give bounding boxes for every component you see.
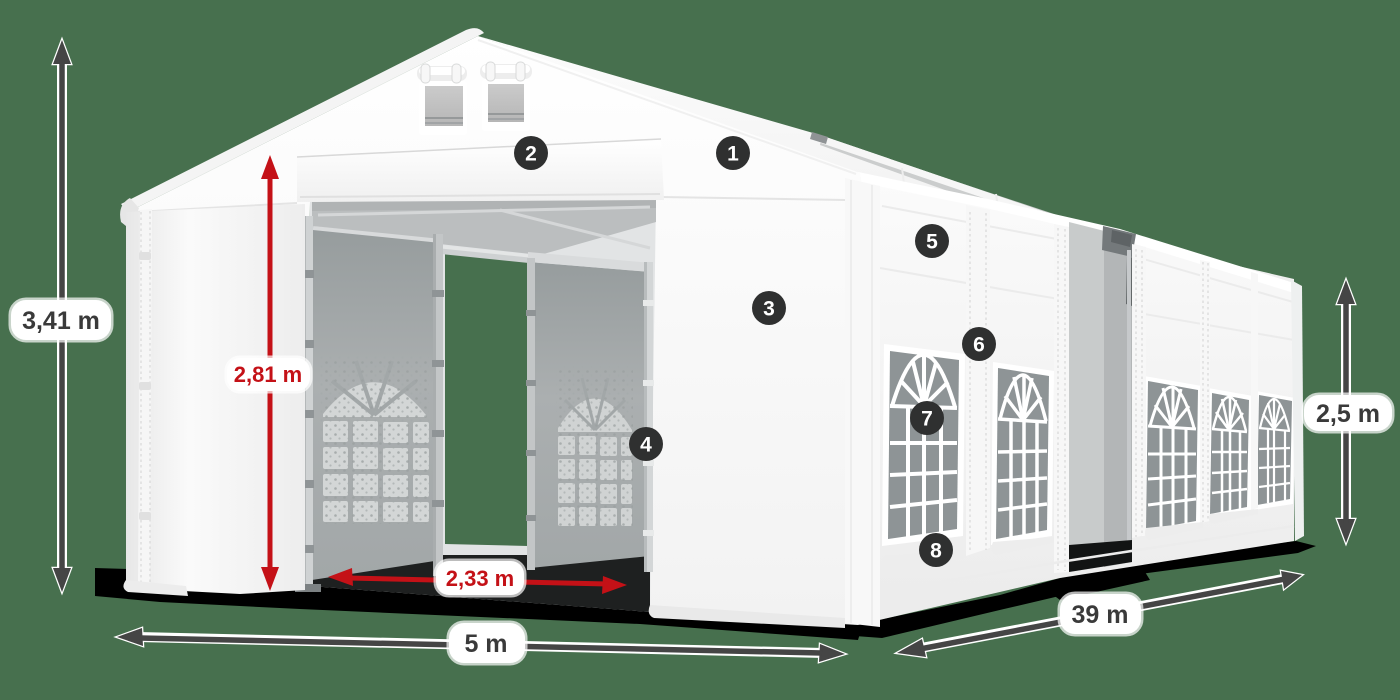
svg-text:5: 5 xyxy=(926,231,938,254)
svg-text:2: 2 xyxy=(525,143,537,166)
svg-text:8: 8 xyxy=(930,540,942,563)
svg-text:2,5 m: 2,5 m xyxy=(1316,400,1380,428)
svg-text:2,33 m: 2,33 m xyxy=(446,566,515,591)
svg-text:4: 4 xyxy=(640,434,652,457)
svg-text:3,41 m: 3,41 m xyxy=(22,307,100,335)
svg-text:7: 7 xyxy=(921,408,933,431)
svg-text:3: 3 xyxy=(763,298,775,321)
svg-text:5 m: 5 m xyxy=(464,630,507,658)
svg-text:2,81 m: 2,81 m xyxy=(234,362,303,387)
svg-text:39 m: 39 m xyxy=(1072,601,1129,629)
svg-text:6: 6 xyxy=(973,334,985,357)
svg-text:1: 1 xyxy=(727,143,739,166)
